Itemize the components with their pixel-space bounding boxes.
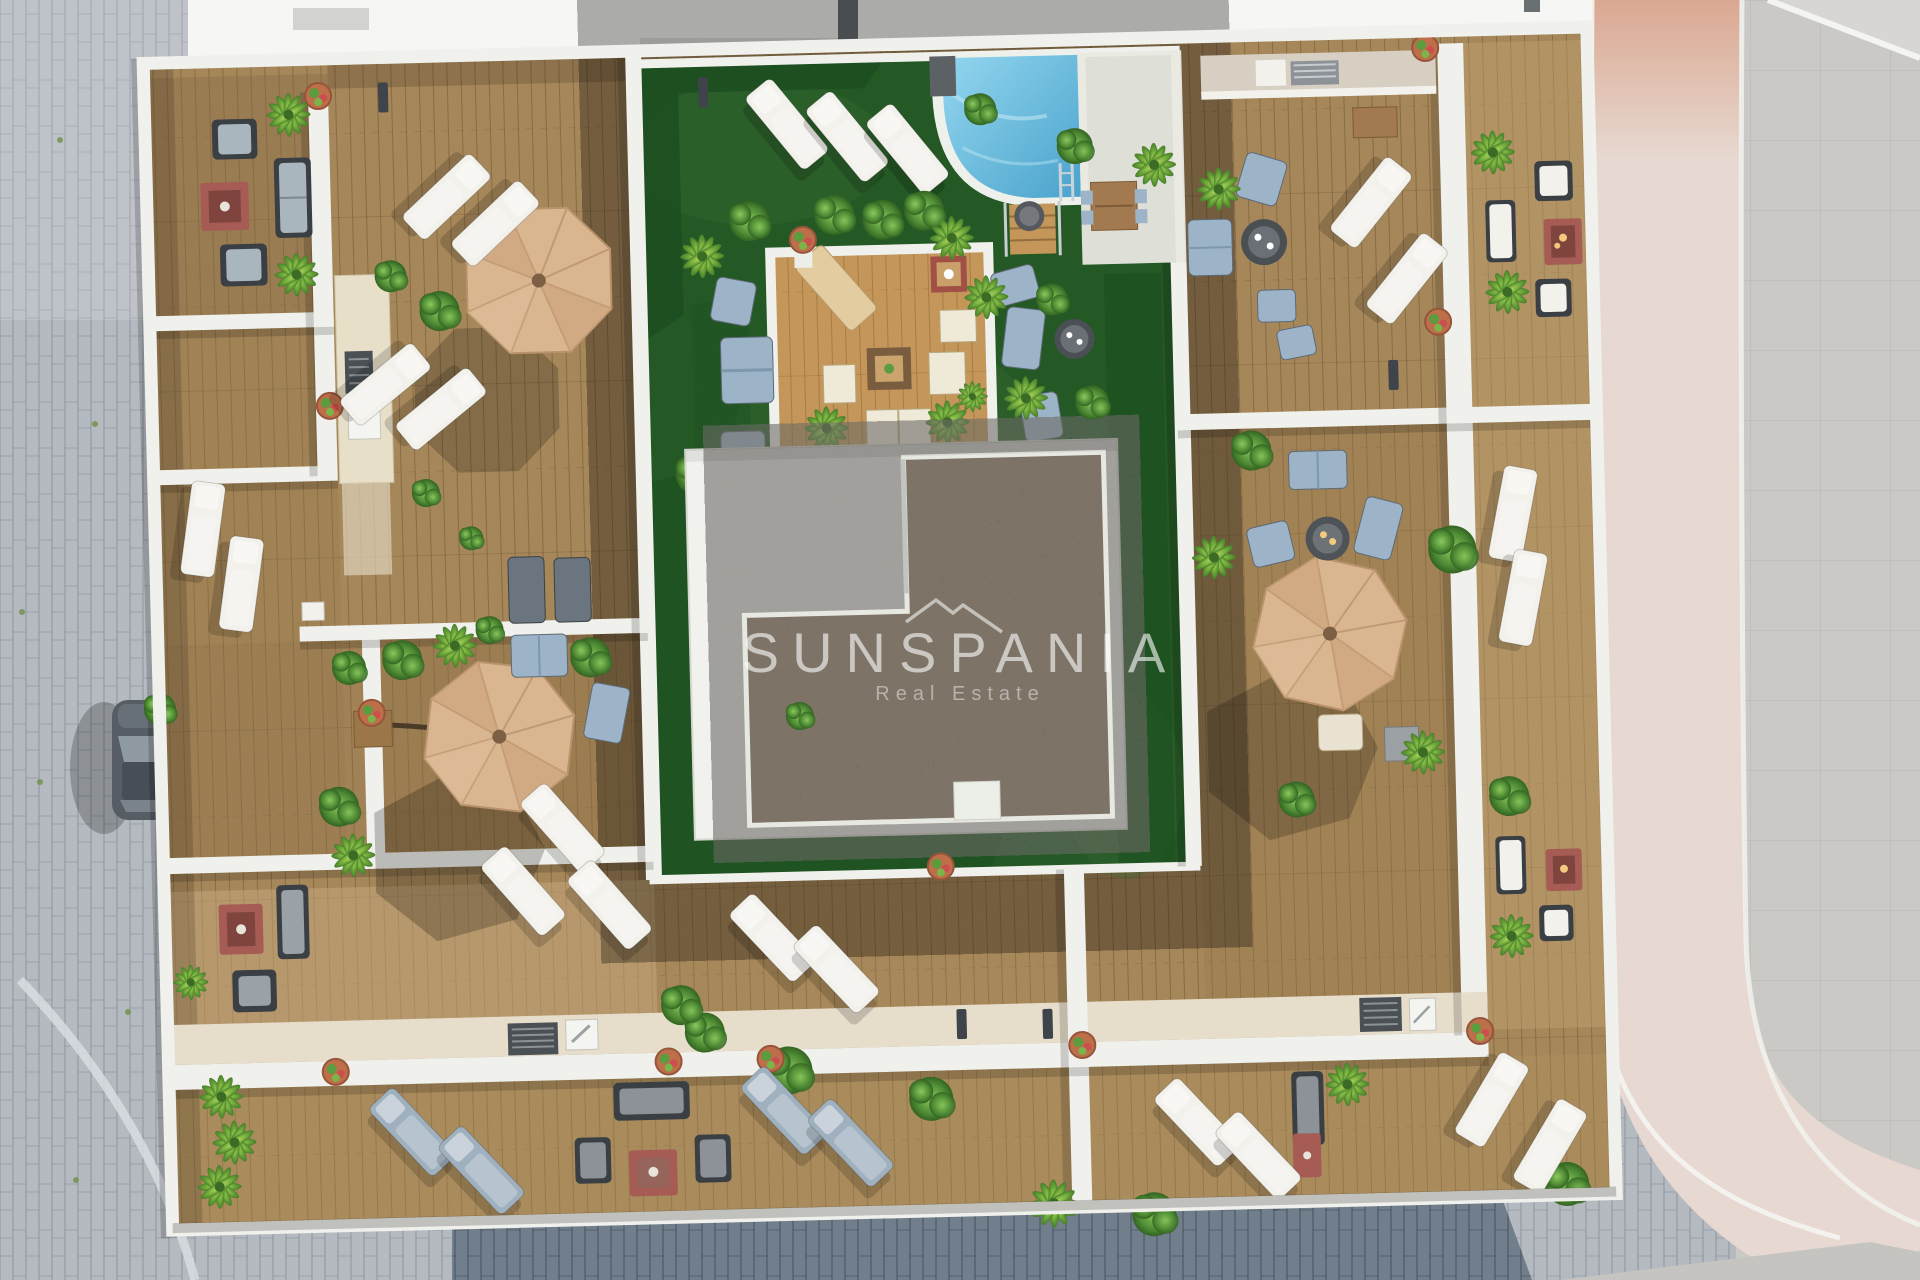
chimney (838, 0, 858, 42)
watermark-tagline: Real Estate (875, 683, 1044, 705)
aerial-render: SUNSPANIA Real Estate (0, 0, 1920, 1280)
roof-access-box (954, 781, 1001, 820)
garden-lamp (698, 77, 709, 107)
wood-bench (1353, 107, 1398, 138)
watermark-brand: SUNSPANIA (742, 621, 1178, 684)
pool-equipment-box (929, 56, 956, 97)
pergola-lounge-platform (765, 240, 999, 473)
scene: SUNSPANIA Real Estate (0, 0, 1920, 1280)
